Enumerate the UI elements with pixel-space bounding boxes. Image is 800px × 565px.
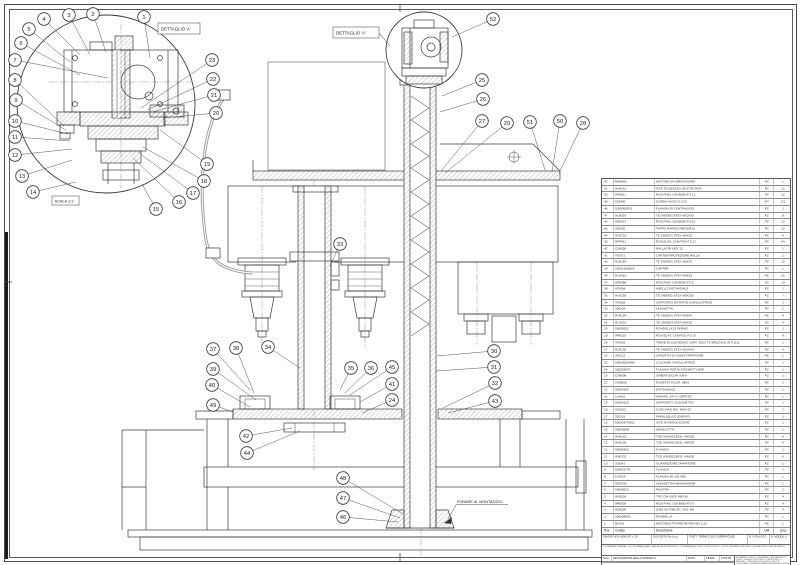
svg-text:2: 2 xyxy=(91,12,94,18)
balloon-16: 16 xyxy=(133,158,185,208)
bom-row-14: 14HN0132TCE UNI5931/5931- M6X20PZ6 xyxy=(602,434,790,441)
bom-col-qty: Q.ta xyxy=(774,528,790,534)
svg-text:47: 47 xyxy=(340,496,346,502)
svg-text:6: 6 xyxy=(19,41,22,47)
bom-row-11: 11HN0132TCE UNI5931/5931- M6X20PZ6 xyxy=(602,454,790,461)
balloon-49: 49 xyxy=(207,399,233,412)
balloon-51: 51 xyxy=(524,116,545,170)
balloon-35: 35 xyxy=(340,362,357,390)
svg-text:20: 20 xyxy=(213,111,219,117)
bom-row-28: 28470029TRAVE DI SOSTEGNO CAPS. DUO T.4 … xyxy=(602,340,790,347)
svg-text:43: 43 xyxy=(492,399,498,405)
svg-text:50: 50 xyxy=(557,119,563,125)
svg-text:46: 46 xyxy=(340,515,346,521)
svg-text:11: 11 xyxy=(12,135,18,141)
balloon-7: 7 xyxy=(9,54,108,78)
bom-row-7: 7MD7030LINGUETTA A-B06/10X8X90PZ1 xyxy=(602,481,790,488)
bom-row-5: 5HV0128TPS C04-5933- M6X16PZ4 xyxy=(602,494,790,501)
balloon-26: 26 xyxy=(440,93,489,112)
svg-text:19: 19 xyxy=(204,162,210,168)
forare-text: FORARE AL MONTAGGIO xyxy=(457,500,503,504)
bom-row-33: 33309104LINGUETTAPZ2 xyxy=(602,306,790,313)
tol-rugosita: RUGOSITA' Ra (in µ) xyxy=(652,535,688,544)
svg-text:16: 16 xyxy=(176,200,182,206)
drawing-sheet: DETTAGLIO 'A' SCALA 1:2 DETTAGLIO 'A' xyxy=(0,0,800,565)
svg-text:26: 26 xyxy=(480,97,486,103)
tol-catalogo: N. CATALOGO xyxy=(748,535,770,544)
bom-row-6: 650000620PIASTRAPZ1 xyxy=(602,487,790,494)
bom-row-27: 27HU0130TE UNI5931-STEI- M10X40PZ4 xyxy=(602,347,790,354)
svg-text:38: 38 xyxy=(233,346,239,352)
svg-text:45: 45 xyxy=(389,365,395,371)
svg-text:21: 21 xyxy=(211,93,217,99)
svg-text:5: 5 xyxy=(27,27,30,33)
bom-row-34: 34470028SUPPORTO ROTANTE CAPSULATRICEPZ1 xyxy=(602,300,790,307)
detail-a-callout-text: DETTAGLIO 'A' xyxy=(336,31,366,36)
bom-row-36: 36470064ANELLO DISTANZIALEPZ1 xyxy=(602,286,790,293)
bom-row-35: 35HU0158TE UNI5931-STEI- M5X100PZ7 xyxy=(602,293,790,300)
bom-row-48: 4850000605S1FLANGIA DI CENTRAGGIOPZ1 xyxy=(602,206,790,213)
bom-row-2: 250000960SRONDELLAPZ1 xyxy=(602,514,790,521)
svg-text:25: 25 xyxy=(479,78,485,84)
svg-text:28: 28 xyxy=(580,121,586,127)
svg-text:39: 39 xyxy=(210,367,216,373)
svg-text:17: 17 xyxy=(190,191,196,197)
bom-row-1: 1BLA01MOTORIDUTTORE PE PAN BO 1:25PZ1 xyxy=(602,521,790,528)
bom-row-29: 29HR0110ROS.ELAS. C06-F051-F.0.10PZ8 xyxy=(602,333,790,340)
balloon-18: 18 xyxy=(143,147,210,187)
bom-rows: 52MM0500MOTORE DA SPECIFICAREPZ151HU0031… xyxy=(602,179,790,528)
bom-row-43: 43HR0911ROS.ELAS. C06-F051-F.0.12PZ54 xyxy=(602,239,790,246)
balloon-52: 52 xyxy=(452,13,499,37)
bom-col-pos: Pos. xyxy=(602,528,614,534)
balloon-13: 13 xyxy=(16,160,72,182)
bom-row-9: 950000174SFLANGIAPZ1 xyxy=(602,467,790,474)
bom-row-41: 41470071CARTER PROTEZIONE RALLAPZ1 xyxy=(602,253,790,260)
balloon-1: 1 xyxy=(138,11,151,58)
bom-row-50: 50HR0011ROS.PIAN. C06-B092-F.0.12PZ12 xyxy=(602,192,790,199)
bom-row-15: 155000050BMANICOTTOPZ1 xyxy=(602,427,790,434)
svg-text:10: 10 xyxy=(12,119,18,125)
balloon-46: 46 xyxy=(337,511,398,524)
detail-a-source-view: DETTAGLIO 'A' xyxy=(333,12,462,88)
detail-a-callout-label: DETTAGLIO 'A' xyxy=(333,27,390,46)
bom-row-18: 18C6A101CUSC.RAD.RIG. 6004 2ZPZ2 xyxy=(602,407,790,414)
bom-col-code: Codice xyxy=(614,528,655,534)
bom-row-44: 44HU0132TE UNI5931-STEI- M5X16PZ8 xyxy=(602,233,790,240)
svg-text:18: 18 xyxy=(201,179,207,185)
svg-text:1: 1 xyxy=(142,15,145,21)
bom-row-42: 42CU6000RALLA OR 6307 1ZPZ1 xyxy=(602,246,790,253)
capper-column xyxy=(290,186,339,409)
svg-text:22: 22 xyxy=(210,77,216,83)
bom-row-22: 22CM0508ROSETTA SICUR. MB 8PZ1 xyxy=(602,380,790,387)
bom-row-46: 46HR0910ROS.PIAN. C06-B092-F.0.10PZ12 xyxy=(602,219,790,226)
svg-text:27: 27 xyxy=(479,119,485,125)
bom-row-45: 45029250TAPPO RAPIDO RMC00P21PZ12 xyxy=(602,226,790,233)
footer-note: RIPRODUZIONE VIETATA - PROPRIETA' DELLA … xyxy=(598,559,793,565)
bom-row-23: 23CN0608GHIERA SICUR. KM 8PZ1 xyxy=(602,373,790,380)
balloon-34: 34 xyxy=(262,341,300,368)
tol-modello: N. MODELLO xyxy=(770,535,790,544)
main-assembly-view xyxy=(122,10,592,556)
bom-header: Pos. Codice Descrizione UM Q.ta xyxy=(602,528,790,535)
svg-text:40: 40 xyxy=(209,383,215,389)
svg-text:30: 30 xyxy=(491,349,497,355)
bom-row-52: 52MM0500MOTORE DA SPECIFICAREPZ1 xyxy=(602,179,790,186)
tol-smussi: SMUSSI NON INDICATI ± .25° xyxy=(602,535,652,544)
balloon-27: 27 xyxy=(441,115,488,171)
svg-text:36: 36 xyxy=(368,366,374,372)
upper-housing-phantom xyxy=(268,62,385,170)
detail-scale-label: SCALA 1:2 xyxy=(55,199,74,204)
bom-row-8: 8FL6024FLANGIA B3 150 M02PZ1 xyxy=(602,474,790,481)
bom-row-20: 20L24010INGRAS. 1/4" D. DIRITTOPZ1 xyxy=(602,394,790,401)
bom-row-10: 10303041GUARNIZIONE TAPPATOREPZ1 xyxy=(602,461,790,468)
bom-row-38: 38HU2010TE UNI5931-STEI- M6X16PZ10 xyxy=(602,273,790,280)
bom-row-19: 1950000150SUPPORTO CUSCINETTOPZ1 xyxy=(602,400,790,407)
bom-row-3: 3HD0038DADI AUTOBLOC. C06- M8PZ4 xyxy=(602,507,790,514)
bom-row-39: 3950001500M09CARTERPZ1 xyxy=(602,266,790,273)
bom-row-32: 32HU0104TE UNI5931-STEI- M5X45PZ4 xyxy=(602,313,790,320)
svg-text:49: 49 xyxy=(210,403,216,409)
bom-and-title-block: 52MM0500MOTORE DA SPECIFICAREPZ151HU0031… xyxy=(601,178,791,565)
svg-text:42: 42 xyxy=(243,434,249,440)
balloon-31: 31 xyxy=(436,361,500,374)
svg-text:29: 29 xyxy=(504,121,510,127)
tol-tratt: TRATT. TERMICO E/O SUPERFICIALE xyxy=(688,535,748,544)
svg-text:13: 13 xyxy=(19,174,25,180)
svg-text:14: 14 xyxy=(30,190,37,196)
balloon-2: 2 xyxy=(87,8,106,52)
svg-text:33: 33 xyxy=(337,242,343,248)
balloon-3: 3 xyxy=(63,9,90,55)
svg-text:34: 34 xyxy=(265,345,272,351)
bom-row-37: 37HR0088ROS.PIAN. C06-B092-F.0.5PZ10 xyxy=(602,280,790,287)
svg-text:51: 51 xyxy=(527,120,533,126)
forare-note: FORARE AL MONTAGGIO xyxy=(444,500,508,524)
tolerance-strip: SMUSSI NON INDICATI ± .25° RUGOSITA' Ra … xyxy=(602,535,790,545)
bom-row-24: 2450002907SFLANGIA PORTA DISCHETTI ADRPZ… xyxy=(602,367,790,374)
svg-text:44: 44 xyxy=(244,451,251,457)
balloon-30: 30 xyxy=(437,345,500,358)
balloon-15: 15 xyxy=(142,184,162,215)
base-frame xyxy=(122,419,592,550)
balloon-38: 38 xyxy=(230,342,254,393)
bom-row-26: 26301212CANOTTO DI GUIDA TAPPATOREPZ1 xyxy=(602,353,790,360)
bom-row-31: 31HU1032TE UNI5933-STEI- M6X16PZ4 xyxy=(602,320,790,327)
bom-row-30: 3050000502RONDELLA DI FERMOPZ1 xyxy=(602,326,790,333)
bom-col-desc: Descrizione xyxy=(655,528,760,534)
bom-col-um: UM xyxy=(760,528,774,534)
bom-row-40: 40HU0164TE UNI5931-STEI- M5X70PZ12 xyxy=(602,259,790,266)
svg-text:37: 37 xyxy=(210,347,216,353)
svg-text:52: 52 xyxy=(490,17,496,23)
table-slab xyxy=(196,396,560,432)
svg-text:9: 9 xyxy=(14,98,17,104)
bom-row-21: 2150000190DISTANZIALEPZ1 xyxy=(602,387,790,394)
bom-row-4: 4HR0038ROS.PIAN. C06-B092-F.0.6PZ4 xyxy=(602,501,790,508)
svg-text:32: 32 xyxy=(492,381,498,387)
detail-a-title: DETTAGLIO 'A' xyxy=(161,27,191,32)
bom-row-49: 49023400CORDA GAOO D.3.53MT2.5 xyxy=(602,199,790,206)
bom-row-13: 13HN0128TCE UNI5931/5931- M8X20PZ4 xyxy=(602,440,790,447)
bom-row-16: 1650000427M01VITE DI REGOLAZIONEPZ1 xyxy=(602,420,790,427)
turret-housing xyxy=(228,186,558,262)
bom-row-17: 17302101PARALLELA D.10X8X50PZ1 xyxy=(602,414,790,421)
balloon-11: 11 xyxy=(9,131,70,144)
svg-text:7: 7 xyxy=(13,58,16,64)
svg-text:31: 31 xyxy=(491,365,497,371)
bom-row-12: 1250000432FLANGIAPZ1 xyxy=(602,447,790,454)
svg-text:23: 23 xyxy=(209,58,215,64)
bom-row-25: 2550000501M09COLONNA CAPSULATRICEPZ1 xyxy=(602,360,790,367)
detail-a-view: DETTAGLIO 'A' SCALA 1:2 xyxy=(17,15,200,205)
capsule-feed-tube xyxy=(386,77,454,528)
general-note: TOLLERANZE GENERALI: QUOTE LINEARI E ANG… xyxy=(602,545,790,556)
svg-text:35: 35 xyxy=(348,366,354,372)
svg-text:15: 15 xyxy=(153,207,159,213)
bom-row-47: 47HU0920TE UNI5931-STEI- M10X30PZ8 xyxy=(602,213,790,220)
svg-text:8: 8 xyxy=(13,78,16,84)
balloon-12: 12 xyxy=(9,149,72,162)
bom-row-51: 51HU0031VITE TE M10X30 UNI 5739 INOXPZ12 xyxy=(602,186,790,193)
svg-text:12: 12 xyxy=(12,153,18,159)
svg-text:48: 48 xyxy=(340,476,346,482)
svg-text:3: 3 xyxy=(67,13,70,19)
balloon-5: 5 xyxy=(23,23,70,62)
svg-text:24: 24 xyxy=(389,398,396,404)
svg-text:41: 41 xyxy=(389,382,395,388)
balloon-50: 50 xyxy=(552,115,566,172)
right-turret-box xyxy=(458,262,553,342)
